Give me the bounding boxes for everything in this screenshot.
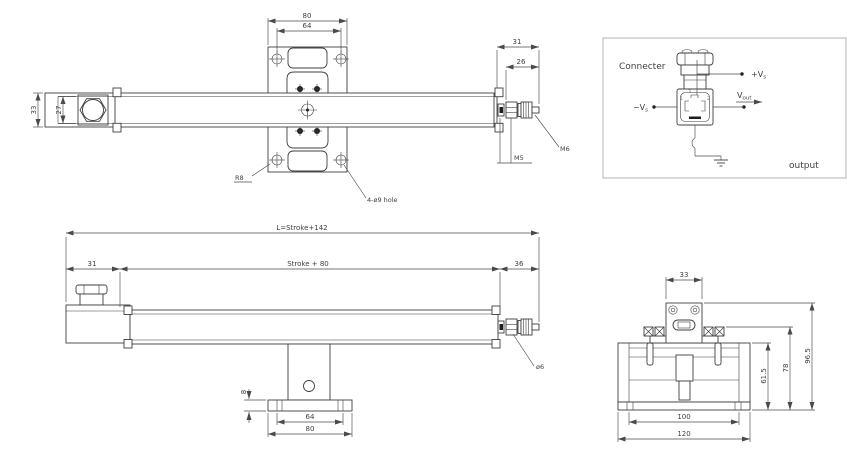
top-view-rod	[498, 102, 539, 118]
label-rod-diameter: ø6	[536, 363, 544, 371]
side-view: ø6 L=Stroke+142 31 Stroke + 80 36 8	[66, 224, 544, 437]
dim-height-78: 78	[782, 364, 790, 373]
pin-1-number: 1	[680, 96, 683, 102]
dim-right-section: 36	[515, 260, 524, 268]
pin-2-contact	[701, 101, 705, 111]
drawing-canvas: 80 64 33 27 31 26 M6 M5 R8 4-ø9 hole	[0, 0, 860, 459]
dim-27-left: 27	[55, 106, 63, 115]
dim-overall-length: L=Stroke+142	[276, 224, 327, 232]
minus-vs-label: −Vs	[633, 103, 648, 114]
dim-height-96-5: 96.5	[804, 348, 812, 364]
top-view: 80 64 33 27 31 26 M6 M5 R8 4-ø9 hole	[30, 12, 570, 204]
engineering-drawing-sheet: 80 64 33 27 31 26 M6 M5 R8 4-ø9 hole	[0, 0, 860, 459]
dim-base-80: 80	[306, 425, 315, 433]
label-mounting-holes: 4-ø9 hole	[367, 196, 398, 204]
side-view-connector-housing	[66, 285, 130, 343]
dim-80-top: 80	[303, 12, 312, 20]
pin-2-number: 2	[707, 96, 710, 102]
dim-base-thickness: 8	[240, 390, 248, 394]
dim-26-topright: 26	[517, 58, 526, 66]
end-view-top-bracket	[666, 303, 702, 343]
pin-1-contact	[685, 101, 689, 111]
connector-plug-symbol: 1 2 3	[677, 50, 713, 126]
dim-33-left: 33	[30, 106, 38, 115]
ground-symbol	[692, 125, 728, 166]
label-m5: M5	[514, 154, 524, 162]
side-view-pedestal	[268, 344, 352, 411]
pin-3-number: 3	[688, 89, 691, 95]
output-label: output	[789, 161, 819, 171]
connector-diagram-title: Connecter	[619, 62, 666, 72]
dim-width-120: 120	[677, 430, 690, 438]
dim-31-topright: 31	[513, 38, 522, 46]
plus-vs-label: +Vs	[751, 70, 766, 81]
pin-3-contact	[691, 95, 698, 98]
side-view-body	[124, 306, 500, 348]
dim-base-64: 64	[306, 413, 315, 421]
end-view-body	[618, 343, 750, 410]
dim-stroke-section: Stroke + 80	[287, 260, 329, 268]
vout-label: Vout	[737, 91, 752, 102]
dim-64-top: 64	[303, 22, 312, 30]
dim-bracket-width: 33	[680, 271, 689, 279]
connector-diagram: Connecter output 1 2 3 +Vs −Vs Vout	[603, 38, 846, 178]
dim-height-61-5: 61.5	[760, 368, 768, 384]
pin-4-contact	[689, 117, 701, 120]
label-r8: R8	[235, 174, 244, 182]
side-view-rod: ø6	[498, 319, 544, 371]
end-view: 33 61.5 78 96.5 100 120	[618, 271, 815, 442]
top-view-body	[45, 88, 503, 132]
dim-left-section: 31	[88, 260, 97, 268]
dim-width-100: 100	[677, 413, 690, 421]
label-m6: M6	[560, 145, 570, 153]
